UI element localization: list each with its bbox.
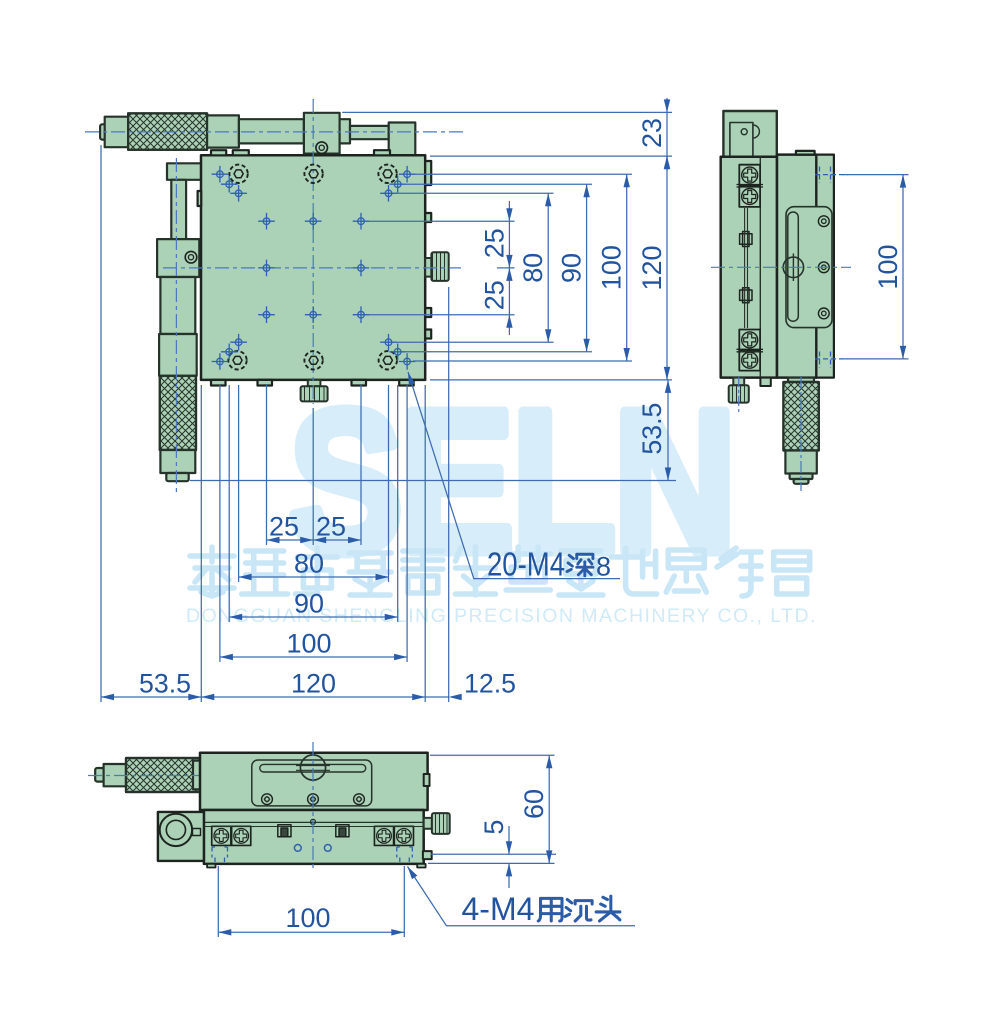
svg-text:100: 100: [873, 245, 903, 290]
svg-text:25: 25: [269, 511, 299, 541]
svg-text:120: 120: [291, 668, 336, 698]
svg-text:53.5: 53.5: [637, 403, 667, 455]
svg-text:100: 100: [597, 245, 627, 290]
svg-text:25: 25: [479, 228, 509, 258]
svg-text:25: 25: [316, 511, 346, 541]
svg-text:53.5: 53.5: [139, 668, 191, 698]
svg-text:5: 5: [479, 820, 509, 835]
svg-text:60: 60: [519, 789, 549, 819]
svg-text:80: 80: [518, 253, 548, 283]
svg-text:DONGGUAN SHENGLING PRECISION M: DONGGUAN SHENGLING PRECISION MACHINERY C…: [186, 605, 817, 627]
svg-text:90: 90: [294, 588, 324, 618]
svg-text:8: 8: [596, 551, 611, 581]
svg-text:120: 120: [637, 246, 667, 291]
svg-text:80: 80: [294, 548, 324, 578]
svg-text:100: 100: [287, 628, 332, 658]
svg-text:4-M4: 4-M4: [462, 891, 535, 927]
svg-text:90: 90: [557, 253, 587, 283]
svg-text:100: 100: [286, 903, 331, 933]
svg-text:20-M4: 20-M4: [487, 545, 565, 582]
svg-text:23: 23: [637, 118, 667, 148]
svg-text:25: 25: [479, 280, 509, 310]
svg-text:12.5: 12.5: [464, 668, 516, 698]
